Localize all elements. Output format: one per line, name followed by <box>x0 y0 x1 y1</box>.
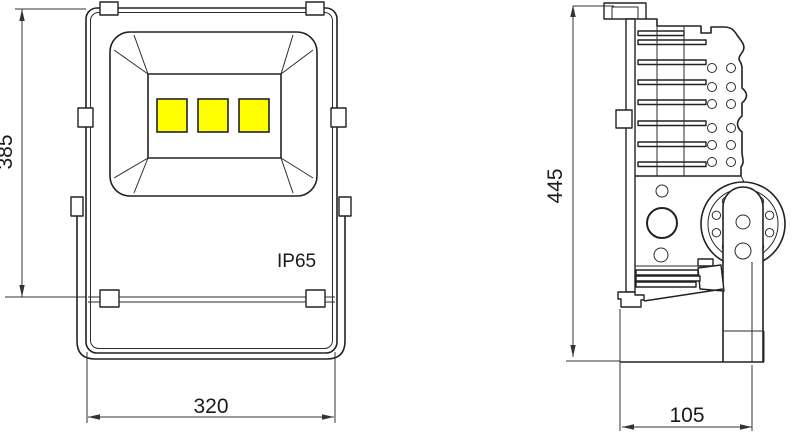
led-chip-3 <box>239 99 269 132</box>
led-chips <box>157 99 269 132</box>
dimension-side-height: 445 <box>544 5 620 361</box>
drawing-canvas: IP65 385 320 <box>0 0 800 432</box>
housing-hole-large <box>647 208 677 238</box>
seam-clip-right <box>306 290 325 307</box>
side-height-value: 445 <box>544 168 567 203</box>
dimension-front-width: 320 <box>87 352 335 423</box>
front-plate <box>626 19 635 292</box>
bracket-pivot-right <box>339 197 351 216</box>
top-tab-right <box>306 2 324 15</box>
side-depth-value: 105 <box>669 404 704 427</box>
led-chip-1 <box>157 99 187 132</box>
bracket-pivot-left <box>71 197 83 216</box>
top-tab-left <box>100 2 118 15</box>
ip-rating-label: IP65 <box>277 251 316 272</box>
side-tab-left <box>78 108 93 127</box>
bracket-arm <box>723 187 763 362</box>
front-width-value: 320 <box>193 395 228 418</box>
housing-hole-small-upper <box>656 185 668 197</box>
housing-bottom-tab <box>698 259 713 266</box>
side-tab-right <box>331 108 346 127</box>
side-top-cap <box>604 3 646 19</box>
floodlight-technical-drawing: IP65 385 320 <box>0 0 800 432</box>
seam-clip-left <box>100 290 119 307</box>
led-chip-2 <box>198 99 228 132</box>
terminal-block <box>636 265 724 301</box>
side-view: 445 105 <box>544 3 785 431</box>
front-view: IP65 385 320 <box>0 2 351 423</box>
dimension-front-height: 385 <box>0 9 87 297</box>
heatsink-fins <box>638 26 706 176</box>
front-height-value: 385 <box>0 134 17 169</box>
housing-hole-small-lower <box>654 248 668 262</box>
heatsink-holes <box>708 64 736 167</box>
front-plate-foot <box>618 292 644 307</box>
front-plate-tab <box>616 110 632 128</box>
